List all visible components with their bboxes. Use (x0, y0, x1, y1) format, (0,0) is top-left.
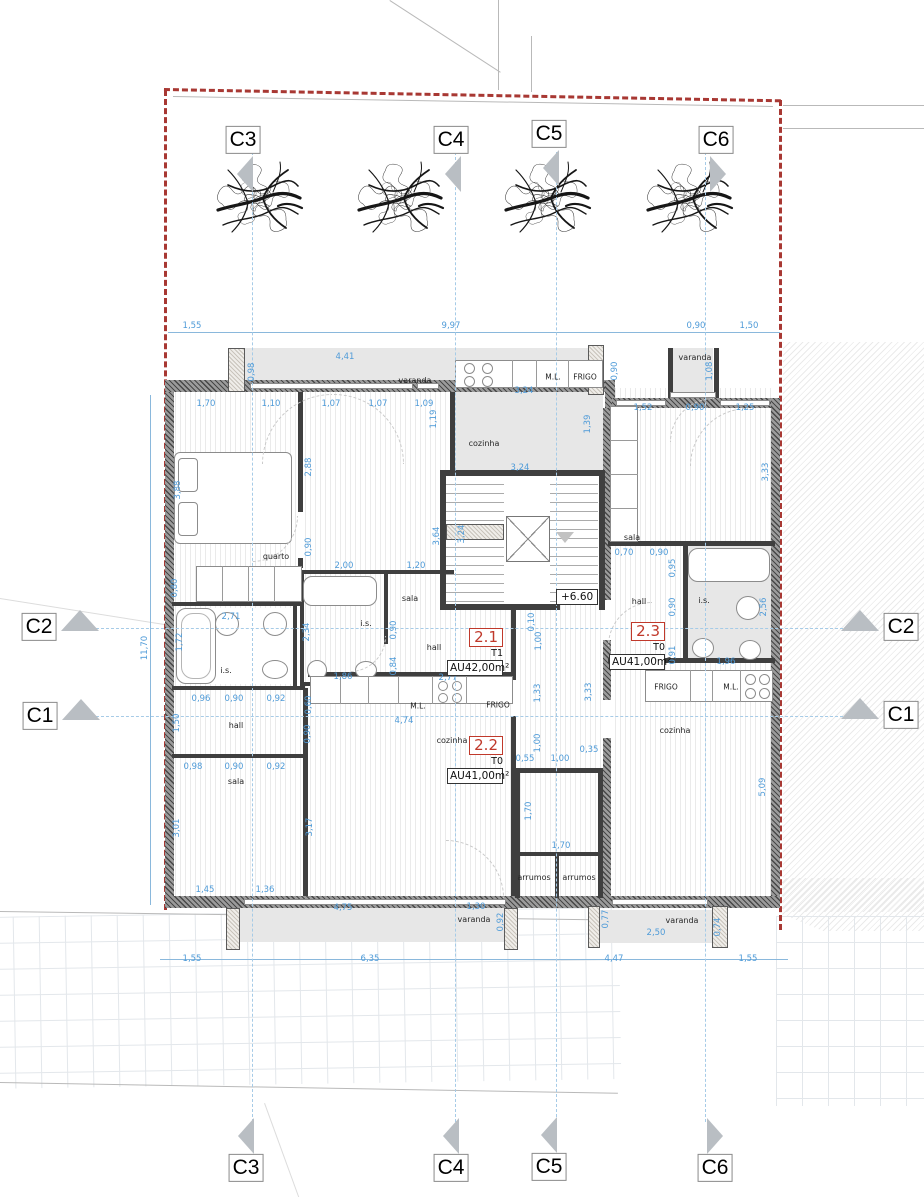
plan-geometry (603, 700, 611, 738)
room-label: cozinha7,40 m2 (469, 439, 500, 449)
floor-plan-canvas: 1,559,970,901,504,410,983,240,901,081,70… (0, 0, 924, 1194)
unit-tag-2.1: 2.1T1AU42,00m² (447, 627, 503, 676)
plan-geometry (670, 392, 716, 398)
dimension-label: 0,74 (713, 918, 723, 937)
dimension-label: 0,98 (247, 363, 257, 382)
dimension-label: 2,56 (759, 598, 769, 617)
bidet (739, 640, 761, 660)
dimension-label: 1,00 (551, 754, 570, 764)
room-label: i.s.5,00 m2 (698, 596, 709, 606)
dimension-label: 1,09 (415, 399, 434, 409)
dimension-label: 3,88 (173, 481, 183, 500)
room-label: sala13,50 m2 (402, 594, 418, 604)
plan-geometry (368, 676, 369, 704)
appliance-label: FRIGO (573, 373, 596, 382)
plan-geometry (515, 768, 603, 773)
dimension-label: 5,09 (758, 778, 768, 797)
dimension-label: 0,80 (170, 579, 180, 598)
dimension-label: 0,70 (615, 548, 634, 558)
toilet (262, 660, 288, 679)
dimension-label: 0,95 (668, 559, 678, 578)
plan-geometry (588, 906, 600, 948)
section-arrow-icon (443, 1118, 459, 1154)
dimension-label: 0,90 (225, 762, 244, 772)
room-label: quarto12,60 m2 (263, 552, 289, 562)
appliance-label: M.L. (723, 683, 738, 692)
dimension-label: 1,08 (705, 362, 715, 381)
dimension-label: 1,07 (369, 399, 388, 409)
dimension-label: 1,86 (334, 672, 353, 682)
dimension-label: 0,90 (686, 403, 705, 413)
appliance-label: FRIGO (486, 701, 509, 710)
dimension-label: 1,25 (736, 403, 755, 413)
section-arrow-icon (238, 1118, 254, 1154)
room-label: varanda2,20 m2 (666, 916, 699, 926)
section-marker-c5-bottom: C5 (532, 1153, 567, 1181)
dimension-label: 3,24 (515, 386, 534, 396)
section-marker-c1-right: C1 (884, 701, 919, 729)
dimension-label: 1,50 (172, 714, 182, 733)
plan-geometry (303, 688, 308, 896)
dimension-label: 1,70 (524, 802, 534, 821)
unit-number: 2.2 (469, 736, 503, 755)
room-label: varanda5,80 m2 (458, 915, 491, 925)
dimension-label: 0,92 (496, 913, 506, 932)
dimension-label: 0,10 (527, 613, 537, 632)
dimension-label: 0,90 (650, 548, 669, 558)
plan-geometry (300, 570, 454, 574)
section-arrow-icon (543, 150, 559, 186)
dimension-label: 1,00 (534, 632, 544, 651)
dimension-label: 0,98 (184, 762, 203, 772)
sink (263, 612, 287, 636)
dimension-line (150, 395, 151, 905)
dimension-label: 1,20 (407, 561, 426, 571)
site-context-line (531, 36, 532, 92)
section-arrow-icon (541, 1117, 557, 1153)
dimension-label: 1,30 (467, 902, 486, 912)
dimension-label: 4,41 (336, 352, 355, 362)
plan-geometry (172, 686, 305, 690)
tree-icon (211, 153, 305, 247)
closet (196, 566, 302, 602)
room-label: cozinha18,50 m2 (660, 726, 691, 736)
plan-geometry (228, 348, 245, 392)
unit-area: AU42,00m² (447, 660, 503, 676)
plan-geometry (610, 474, 638, 475)
unit-type: T0 (609, 642, 665, 653)
site-context-line (783, 128, 924, 129)
plan-geometry (172, 602, 302, 606)
plan-geometry (298, 512, 303, 558)
room-label: arrumos0,80 m2 (562, 873, 595, 883)
dimension-label: 0,90 (610, 362, 620, 381)
stove-burner-icon (745, 674, 756, 685)
plan-geometry (293, 604, 297, 688)
unit-area: AU41,00m² (447, 768, 503, 784)
pillow (178, 502, 198, 536)
plan-geometry (512, 360, 513, 388)
dimension-label: 6,35 (361, 954, 380, 964)
dimension-label: 1,19 (429, 410, 439, 429)
room-label: hall4,20 m2 (229, 721, 243, 731)
room-label: arrumos0,80 m2 (517, 873, 550, 883)
dimension-label: 1,55 (183, 954, 202, 964)
plan-geometry (690, 670, 691, 702)
room-label: i.s.4,70 m2 (220, 666, 231, 676)
dimension-label: 3,24 (457, 525, 467, 544)
bathtub-inner (181, 613, 211, 679)
dimension-label: 0,60 (304, 696, 314, 715)
section-arrow-icon (841, 610, 879, 631)
plan-geometry (384, 574, 388, 644)
dimension-label: 1,10 (262, 399, 281, 409)
dimension-label: 3,01 (172, 819, 182, 838)
appliance-label: FRIGO (654, 683, 677, 692)
site-context-line (783, 105, 924, 106)
section-arrow-icon (707, 1118, 723, 1154)
dimension-label: 3,64 (432, 527, 442, 546)
section-line (556, 152, 557, 1122)
dimension-label: 11,70 (140, 636, 150, 660)
room-label: hall5,00 m2 (632, 597, 646, 607)
stove-burner-icon (482, 376, 493, 387)
plan-geometry (440, 604, 560, 610)
dimension-label: 0,84 (389, 657, 399, 676)
stair-direction-arrow-icon (556, 532, 574, 543)
dimension-label: 0,96 (192, 694, 211, 704)
plan-geometry (612, 899, 708, 905)
unit-type: T0 (447, 756, 503, 767)
dimension-label: 2,34 (302, 623, 312, 642)
dimension-label: 1,33 (533, 684, 543, 703)
section-marker-c2-left: C2 (22, 613, 57, 641)
dimension-label: 4,47 (605, 954, 624, 964)
section-line (705, 152, 706, 1122)
section-marker-c1-left: C1 (23, 702, 58, 730)
unit-type: T1 (447, 648, 503, 659)
toilet (692, 638, 714, 658)
dimension-line (160, 959, 788, 960)
plan-geometry (250, 383, 413, 389)
dimension-label: 1,72 (175, 633, 185, 652)
plan-geometry (568, 360, 569, 388)
section-marker-c3-top: C3 (226, 126, 261, 154)
dimension-label: 2,50 (647, 928, 666, 938)
plan-geometry (432, 676, 433, 704)
dimension-label: 3,17 (305, 818, 315, 837)
bathtub (303, 576, 377, 606)
plan-geometry (172, 754, 305, 758)
dimension-label: 0,90 (304, 538, 314, 557)
plan-geometry (222, 566, 223, 602)
bathtub (688, 548, 770, 582)
section-marker-c4-top: C4 (434, 126, 469, 154)
section-arrow-icon (61, 610, 99, 631)
room-label: hall4,20 m2 (427, 643, 441, 653)
unit-tag-2.2: 2.2T0AU41,00m² (447, 735, 503, 784)
plan-geometry (248, 566, 249, 602)
room-label: varanda1,00 m2 (679, 353, 712, 363)
dimension-label: 3,24 (511, 463, 530, 473)
section-marker-c3-bottom: C3 (229, 1154, 264, 1182)
plan-geometry (610, 508, 638, 509)
level-annotation: +6.60 (556, 589, 598, 605)
dimension-label: 1,52 (634, 403, 653, 413)
stove-burner-icon (482, 363, 493, 374)
site-context-line (389, 0, 500, 73)
dimension-label: 1,45 (196, 885, 215, 895)
dimension-label: 1,50 (740, 321, 759, 331)
plan-geometry (226, 908, 240, 950)
room-label: i.s.4,40 m2 (360, 619, 371, 629)
section-line (96, 716, 848, 717)
stove-burner-icon (452, 693, 462, 703)
section-marker-c6-top: C6 (699, 126, 734, 154)
plan-geometry (536, 360, 537, 388)
plan-geometry (515, 852, 603, 856)
section-arrow-icon (62, 699, 100, 720)
section-arrow-icon (841, 698, 879, 719)
plan-geometry (598, 772, 603, 898)
dimension-label: 1,39 (583, 415, 593, 434)
dimension-label: 1,55 (183, 321, 202, 331)
dimension-label: 1,36 (256, 885, 275, 895)
stove-burner-icon (464, 363, 475, 374)
kitchen-floor (455, 392, 603, 470)
pavement-grid (776, 916, 924, 1106)
plan-geometry (712, 670, 713, 702)
section-marker-c2-right: C2 (884, 613, 919, 641)
dimension-label: 3,33 (584, 683, 594, 702)
unit-tag-2.3: 2.3T0AU41,00m² (609, 621, 665, 670)
dimension-label: 0,90 (225, 694, 244, 704)
site-context-line (498, 0, 499, 90)
dimension-label: 0,90 (687, 321, 706, 331)
dimension-label: 9,97 (442, 321, 461, 331)
appliance-label: M.L. (545, 373, 560, 382)
plan-geometry (466, 676, 467, 704)
tree-icon (352, 153, 446, 247)
dimension-label: 0,77 (601, 910, 611, 929)
section-marker-c5-top: C5 (532, 120, 567, 148)
stove-burner-icon (759, 688, 770, 699)
dimension-label: 3,33 (761, 463, 771, 482)
dimension-label: 1,96 (717, 657, 736, 667)
room-label: varanda4,30 m2 (399, 376, 432, 386)
sink (736, 596, 760, 620)
dimension-label: 1,00 (533, 734, 543, 753)
section-arrow-icon (710, 156, 726, 192)
dimension-label: 0,92 (267, 694, 286, 704)
plan-geometry (668, 348, 673, 398)
site-context-line (264, 1103, 299, 1197)
section-arrow-icon (445, 156, 461, 192)
dimension-label: 0,55 (516, 754, 535, 764)
dimension-label: 0,92 (267, 762, 286, 772)
dimension-label: 1,70 (197, 399, 216, 409)
dimension-label: 0,90 (303, 725, 313, 744)
plan-geometry (504, 908, 518, 950)
plan-geometry (398, 676, 399, 704)
section-marker-c4-bottom: C4 (434, 1154, 469, 1182)
plan-geometry (740, 670, 741, 702)
dimension-label: 0,90 (389, 621, 399, 640)
dimension-label: 1,70 (552, 841, 571, 851)
dimension-label: 0,90 (668, 598, 678, 617)
section-marker-c6-bottom: C6 (698, 1154, 733, 1182)
stove-burner-icon (438, 693, 448, 703)
dimension-label: 2,88 (304, 458, 314, 477)
stove-burner-icon (464, 376, 475, 387)
plan-geometry (610, 440, 638, 441)
unit-number: 2.1 (469, 628, 503, 647)
dimension-label: 0,35 (580, 745, 599, 755)
dimension-label: 2,00 (335, 561, 354, 571)
dimension-label: 1,07 (322, 399, 341, 409)
room-label: sala10,00 m2 (228, 777, 244, 787)
unit-number: 2.3 (631, 622, 665, 641)
section-line (252, 152, 253, 1122)
appliance-label: M.L. (410, 702, 425, 711)
plan-geometry (274, 566, 275, 602)
plan-geometry (599, 476, 605, 610)
section-arrow-icon (237, 156, 253, 192)
dimension-line (168, 332, 780, 333)
plan-geometry (771, 398, 780, 906)
stove-burner-icon (745, 688, 756, 699)
stove-burner-icon (759, 674, 770, 685)
elevator-shaft (506, 516, 550, 562)
dimension-label: 4,74 (395, 716, 414, 726)
dimension-label: 4,75 (334, 903, 353, 913)
dimension-label: 2,71 (222, 612, 241, 622)
room-label: sala12,20 m2 (624, 533, 640, 543)
dimension-label: 1,55 (739, 954, 758, 964)
unit-area: AU41,00m² (609, 654, 665, 670)
